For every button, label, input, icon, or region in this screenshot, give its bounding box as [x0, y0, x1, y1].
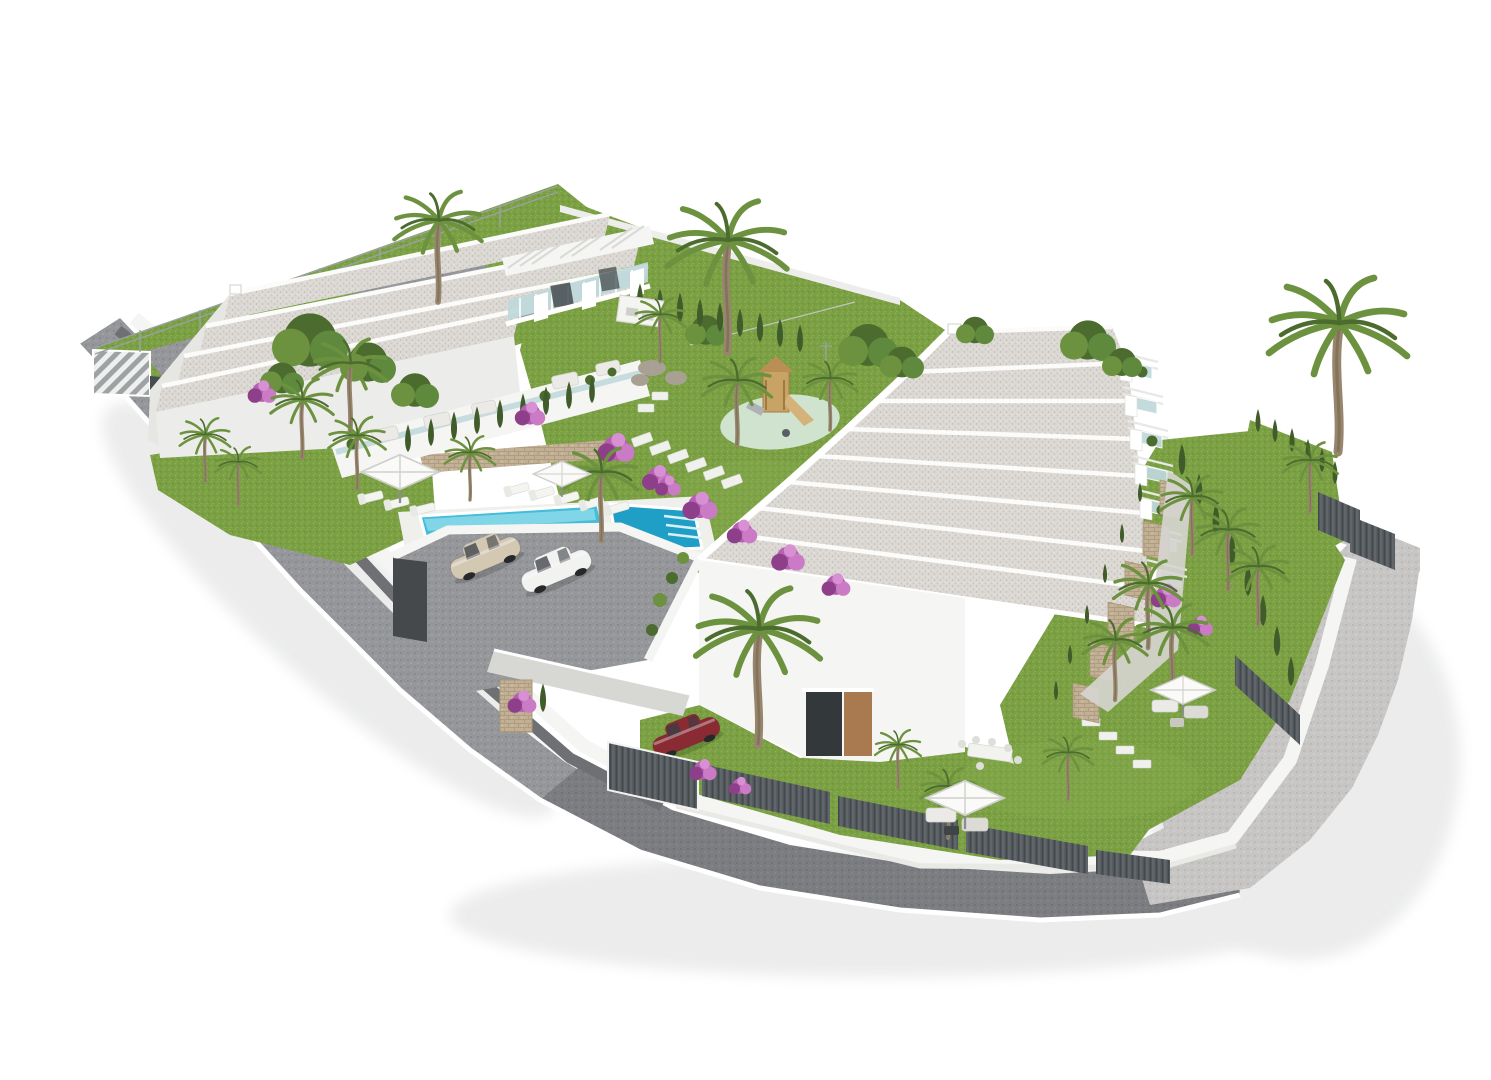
parking-gate — [393, 558, 427, 642]
render-canvas: Aerial 3D render - white terraced reside… — [0, 0, 1491, 1080]
site-render — [0, 0, 1491, 1080]
gable-bronze-door — [844, 690, 872, 756]
gable-glass-door — [806, 692, 842, 756]
